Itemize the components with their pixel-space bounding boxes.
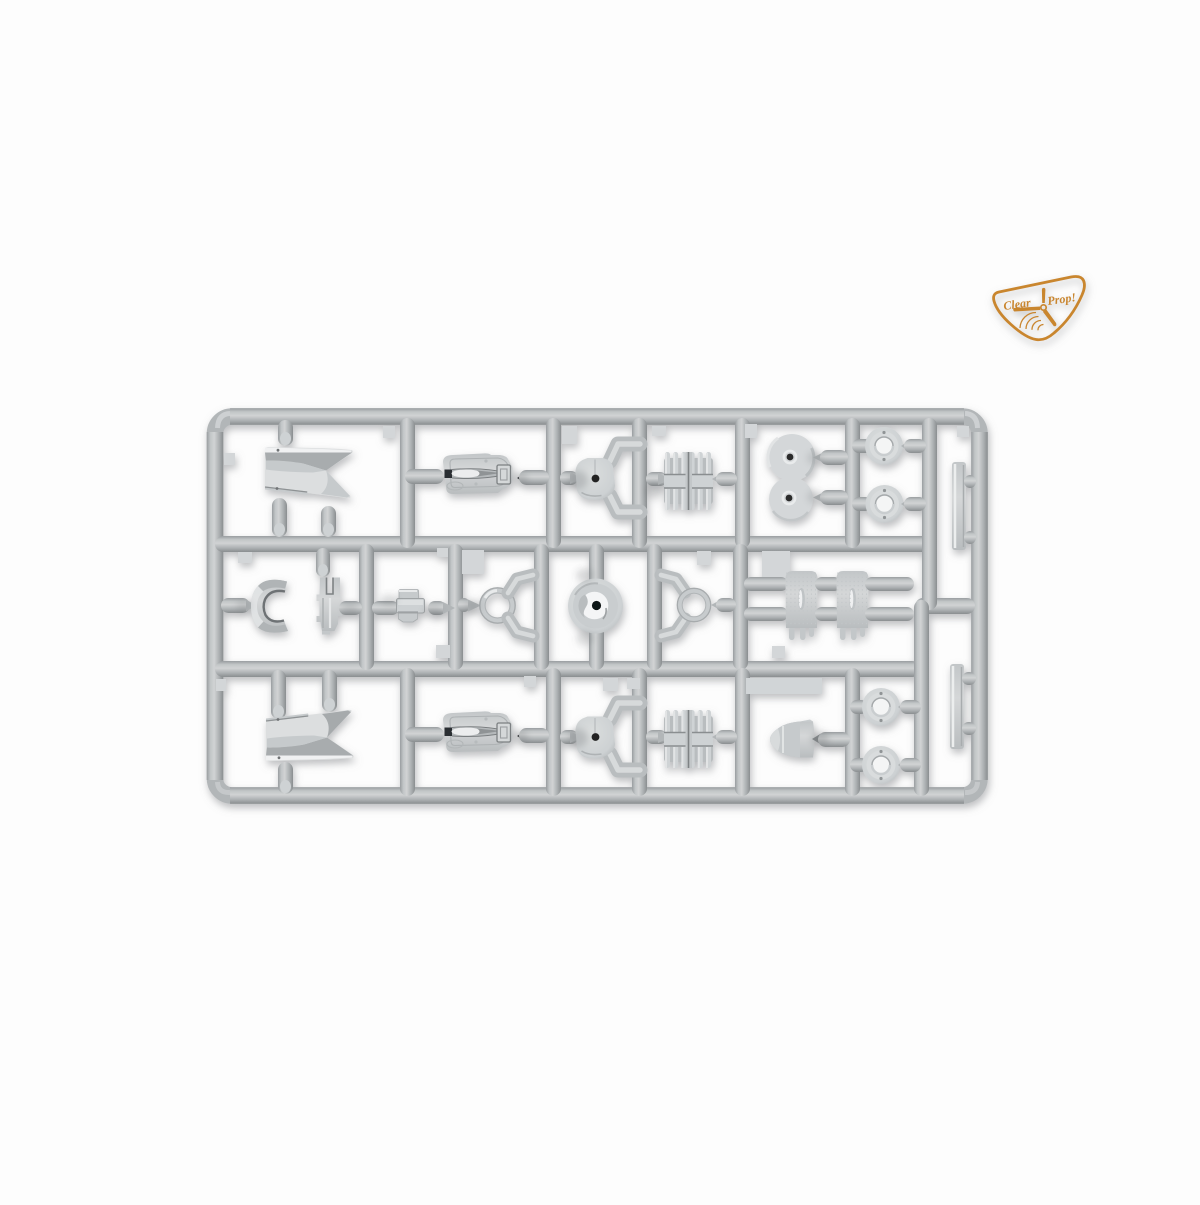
svg-text:Prop!: Prop! xyxy=(1046,290,1076,308)
